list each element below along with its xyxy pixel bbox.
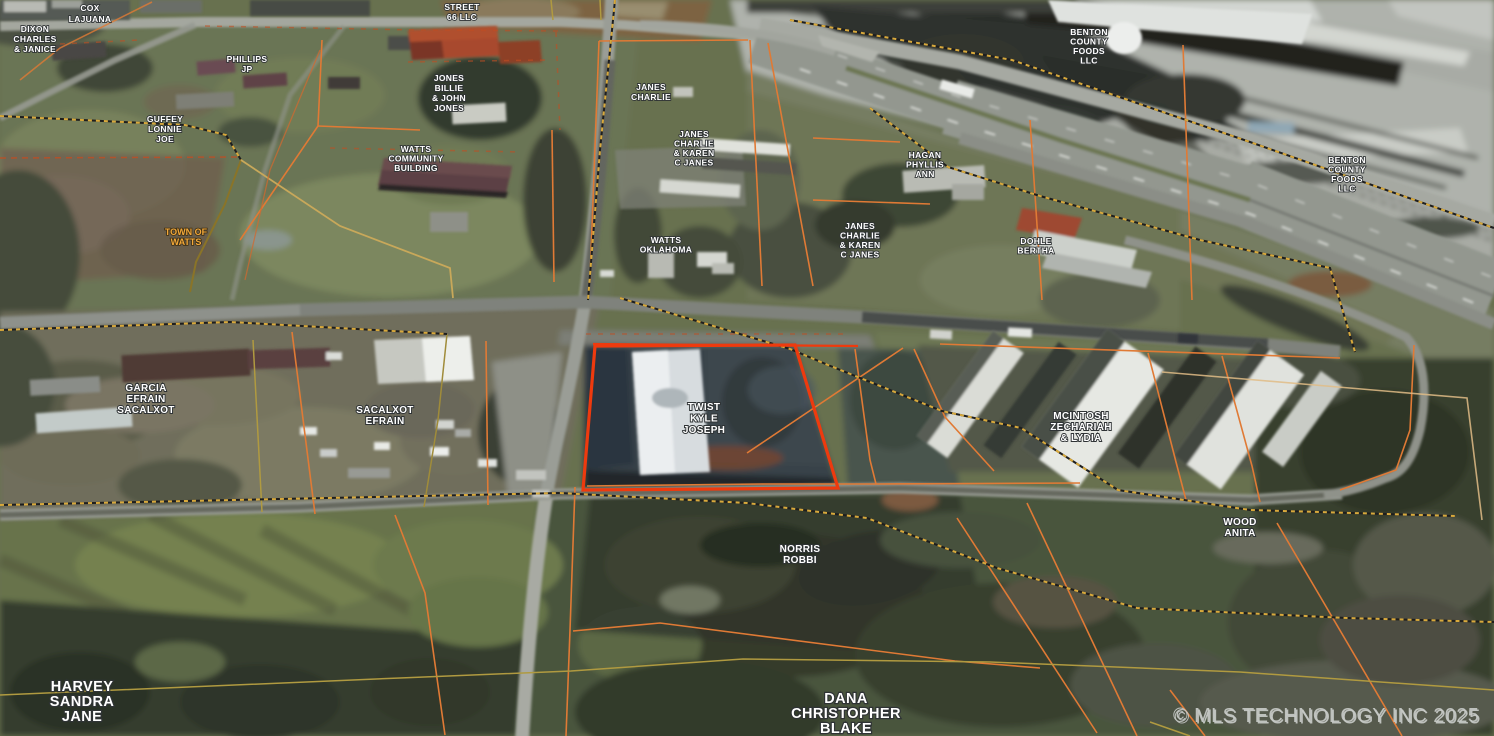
svg-text:DOHLEBERTHA: DOHLEBERTHA [1017, 236, 1054, 256]
svg-text:WOODANITA: WOODANITA [1223, 517, 1256, 539]
svg-text:JANESCHARLIE& KARENC JANES: JANESCHARLIE& KARENC JANES [674, 129, 715, 168]
svg-text:JANESCHARLIE& KARENC JANES: JANESCHARLIE& KARENC JANES [840, 221, 881, 260]
svg-text:NORRISROBBI: NORRISROBBI [780, 544, 821, 566]
svg-text:JONESBILLIE& JOHNJONES: JONESBILLIE& JOHNJONES [432, 73, 466, 113]
svg-text:JANESCHARLIE: JANESCHARLIE [631, 82, 671, 102]
svg-text:STREET66 LLC: STREET66 LLC [444, 2, 480, 22]
svg-text:© MLS TECHNOLOGY INC 2025: © MLS TECHNOLOGY INC 2025 [1173, 705, 1479, 727]
svg-text:TOWN OFWATTS: TOWN OFWATTS [165, 227, 208, 247]
